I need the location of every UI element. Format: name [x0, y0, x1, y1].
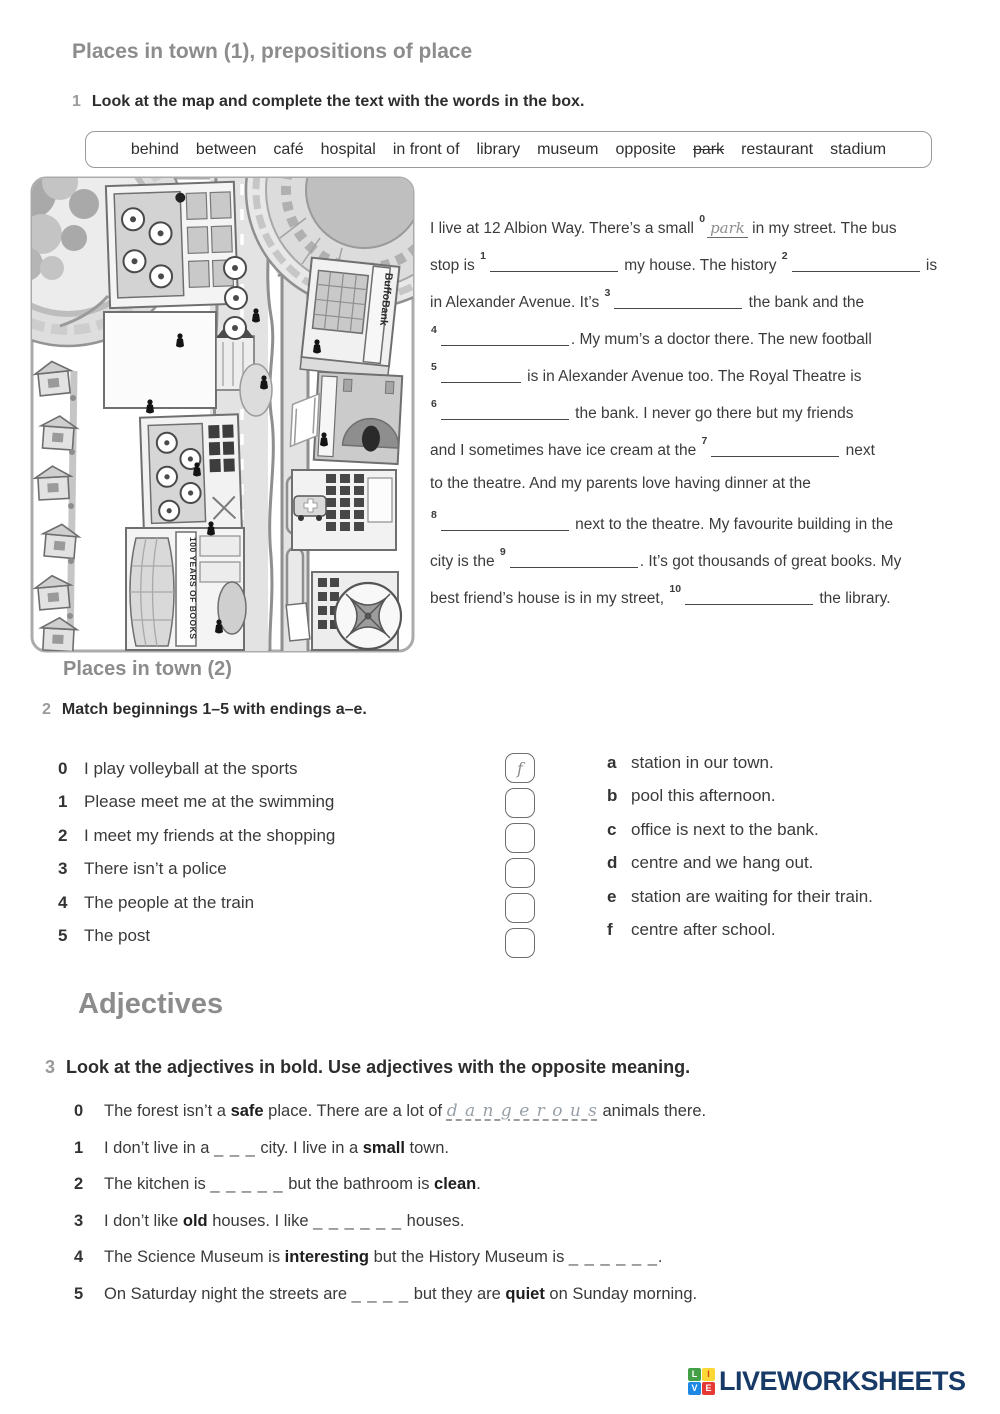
word-box-item: park	[693, 141, 724, 159]
exercise2-instruction: 2Match beginnings 1–5 with endings a–e.	[42, 701, 367, 719]
item-letter: c	[607, 820, 631, 840]
text-line: 4. My mum’s a doctor there. The new foot…	[430, 317, 982, 354]
logo-square: L	[688, 1368, 701, 1381]
text-line: city is the 9. It’s got thousands of gre…	[430, 539, 982, 576]
item-text: There isn’t a police	[84, 859, 227, 879]
answer-blank[interactable]	[711, 441, 839, 457]
answer-blank[interactable]	[441, 404, 569, 420]
word-box-item: library	[477, 141, 521, 159]
exercise-number: 1	[72, 93, 81, 110]
logo-icon: LIVE	[688, 1368, 715, 1395]
answer-blank[interactable]	[510, 552, 638, 568]
match-beginning: 5The post	[58, 920, 335, 954]
section-heading-places2: Places in town (2)	[63, 658, 232, 681]
match-beginning: 4The people at the train	[58, 886, 335, 920]
logo-square: I	[702, 1368, 715, 1381]
adjective-item: 0The forest isn’t a safe place. There ar…	[74, 1093, 974, 1130]
blank-number: 3	[605, 287, 611, 299]
adjective-item: 4The Science Museum is interesting but t…	[74, 1239, 974, 1276]
logo-wordmark: LIVEWORKSHEETS	[719, 1366, 966, 1397]
exercise-number: 2	[42, 701, 51, 718]
exercise1-instruction: 1Look at the map and complete the text w…	[72, 93, 584, 111]
adjective-item: 3I don’t like old houses. I like _ _ _ _…	[74, 1203, 974, 1240]
text-line: and I sometimes have ice cream at the 7 …	[430, 428, 982, 465]
item-number: 3	[58, 859, 84, 879]
library-building: 100 YEARS OF BOOKS	[126, 528, 246, 650]
text-line: stop is 1 my house. The history 2 is	[430, 243, 982, 280]
exercise3-instruction: 3Look at the adjectives in bold. Use adj…	[45, 1057, 690, 1078]
match-beginning: 2I meet my friends at the shopping	[58, 819, 335, 853]
item-text: centre after school.	[631, 920, 776, 940]
blank-number: 10	[669, 583, 681, 595]
word-box-item: between	[196, 141, 257, 159]
bold-adjective: clean	[434, 1175, 476, 1193]
word-box-item: restaurant	[741, 141, 813, 159]
item-number: 1	[74, 1130, 104, 1167]
logo-square: E	[702, 1382, 715, 1395]
item-text: office is next to the bank.	[631, 820, 819, 840]
item-text: On Saturday night the streets are _ _ _ …	[104, 1285, 697, 1303]
item-text: I play volleyball at the sports	[84, 759, 298, 779]
item-text: The Science Museum is interesting but th…	[104, 1248, 663, 1266]
match-ending: coffice is next to the bank.	[607, 813, 873, 847]
item-letter: e	[607, 887, 631, 907]
blank-number: 6	[431, 398, 437, 410]
match-ending: estation are waiting for their train.	[607, 880, 873, 914]
bank-building: BuffoBank	[300, 258, 399, 379]
adjective-item: 5On Saturday night the streets are _ _ _…	[74, 1276, 974, 1313]
answer-blank[interactable]	[490, 256, 618, 272]
blank-number: 9	[500, 546, 506, 558]
answer-blank[interactable]	[685, 589, 813, 605]
item-number: 5	[58, 926, 84, 946]
match-answer-box[interactable]	[505, 928, 535, 958]
word-box-item: museum	[537, 141, 598, 159]
town-map: 100 YEARS OF BOOKS BuffoBank	[30, 176, 415, 653]
logo-square: V	[688, 1382, 701, 1395]
bold-adjective: safe	[231, 1102, 264, 1120]
text-line: in Alexander Avenue. It’s 3 the bank and…	[430, 280, 982, 317]
match-beginning: 0I play volleyball at the sports	[58, 752, 335, 786]
section-heading-adjectives: Adjectives	[78, 988, 223, 1021]
item-letter: f	[607, 920, 631, 940]
blank-number: 7	[702, 435, 708, 447]
text-line: 6 the bank. I never go there but my frie…	[430, 391, 982, 428]
adjective-items-list: 0The forest isn’t a safe place. There ar…	[74, 1093, 974, 1312]
match-beginning: 1Please meet me at the swimming	[58, 786, 335, 820]
item-text: Please meet me at the swimming	[84, 792, 334, 812]
museum-building	[140, 414, 242, 531]
instruction-text: Look at the adjectives in bold. Use adje…	[66, 1057, 690, 1077]
item-text: I don’t live in a _ _ _ city. I live in …	[104, 1139, 449, 1157]
hospital-building	[292, 470, 396, 550]
blank-number: 2	[782, 250, 788, 262]
item-text: centre and we hang out.	[631, 853, 813, 873]
instruction-text: Look at the map and complete the text wi…	[92, 93, 585, 110]
match-answer-box[interactable]	[505, 788, 535, 818]
match-beginnings-list: 0I play volleyball at the sports1Please …	[58, 752, 335, 953]
item-number: 0	[58, 759, 84, 779]
blank-number: 0	[699, 213, 705, 225]
item-number: 4	[74, 1239, 104, 1276]
match-beginning: 3There isn’t a police	[58, 853, 335, 887]
item-text: The post	[84, 926, 150, 946]
text-line: I live at 12 Albion Way. There’s a small…	[430, 206, 982, 243]
gap-fill-text: I live at 12 Albion Way. There’s a small…	[430, 206, 982, 613]
answer-blank[interactable]: _ _ _ _	[352, 1285, 409, 1303]
item-text: station are waiting for their train.	[631, 887, 873, 907]
text-line: best friend’s house is in my street, 10 …	[430, 576, 982, 613]
match-ending: fcentre after school.	[607, 914, 873, 948]
match-answer-box[interactable]	[505, 858, 535, 888]
item-number: 5	[74, 1276, 104, 1313]
answer-blank[interactable]	[792, 256, 920, 272]
adjective-item: 1I don’t live in a _ _ _ city. I live in…	[74, 1130, 974, 1167]
word-box-item: in front of	[393, 141, 460, 159]
item-letter: d	[607, 853, 631, 873]
answer-blank[interactable]: _ _ _ _ _ _	[313, 1212, 402, 1230]
worksheet-page: Places in town (1), prepositions of plac…	[0, 0, 1000, 1414]
town-map-illustration: 100 YEARS OF BOOKS BuffoBank	[30, 176, 415, 653]
match-ending: dcentre and we hang out.	[607, 847, 873, 881]
match-answer-box[interactable]	[505, 823, 535, 853]
answer-blank[interactable]	[614, 293, 742, 309]
item-number: 0	[74, 1093, 104, 1130]
match-answer: f	[517, 759, 523, 778]
item-text: I don’t like old houses. I like _ _ _ _ …	[104, 1212, 464, 1230]
blank-number: 1	[480, 250, 486, 262]
match-ending: bpool this afternoon.	[607, 780, 873, 814]
item-letter: a	[607, 753, 631, 773]
answer-blank[interactable]	[441, 367, 521, 383]
bold-adjective: old	[183, 1212, 208, 1230]
answer-blank[interactable]: _ _ _	[214, 1139, 256, 1157]
item-text: station in our town.	[631, 753, 774, 773]
item-text: pool this afternoon.	[631, 786, 776, 806]
instruction-text: Match beginnings 1–5 with endings a–e.	[62, 701, 367, 718]
item-number: 1	[58, 792, 84, 812]
text-line: 5 is in Alexander Avenue too. The Royal …	[430, 354, 982, 391]
handwritten-answer: d a n g e r o u s	[447, 1101, 598, 1121]
match-answer-boxes: f	[505, 753, 535, 963]
word-box-item: opposite	[615, 141, 676, 159]
item-number: 2	[74, 1166, 104, 1203]
answer-blank[interactable]: _ _ _ _ _	[210, 1175, 283, 1193]
item-text: The kitchen is _ _ _ _ _ but the bathroo…	[104, 1175, 481, 1193]
text-line: to the theatre. And my parents love havi…	[430, 465, 982, 502]
item-number: 4	[58, 893, 84, 913]
museum-building	[106, 182, 238, 308]
liveworksheets-logo[interactable]: LIVE LIVEWORKSHEETS	[688, 1366, 966, 1397]
blank-number: 8	[431, 509, 437, 521]
answer-blank[interactable]: _ _ _ _ _ _	[569, 1248, 658, 1266]
adjective-item: 2The kitchen is _ _ _ _ _ but the bathro…	[74, 1166, 974, 1203]
blank-number: 4	[431, 324, 437, 336]
answer-blank[interactable]	[441, 515, 569, 531]
item-letter: b	[607, 786, 631, 806]
filled-answer[interactable]: park	[707, 219, 748, 238]
item-text: I meet my friends at the shopping	[84, 826, 335, 846]
exercise-number: 3	[45, 1057, 55, 1077]
text-line: 8 next to the theatre. My favourite buil…	[430, 502, 982, 539]
word-box-item: hospital	[321, 141, 376, 159]
match-answer-box[interactable]: f	[505, 753, 535, 783]
item-number: 2	[58, 826, 84, 846]
match-endings-list: astation in our town.bpool this afternoo…	[607, 746, 873, 947]
item-text: The people at the train	[84, 893, 254, 913]
bold-adjective: interesting	[285, 1248, 369, 1266]
item-number: 3	[74, 1203, 104, 1240]
blank-number: 5	[431, 361, 437, 373]
bold-adjective: small	[363, 1139, 405, 1157]
library-banner-label: 100 YEARS OF BOOKS	[188, 537, 198, 639]
word-box-item: stadium	[830, 141, 886, 159]
answer-blank[interactable]	[441, 330, 569, 346]
bold-adjective: quiet	[505, 1285, 544, 1303]
word-box: behindbetweencaféhospitalin front oflibr…	[85, 131, 932, 168]
word-box-item: behind	[131, 141, 179, 159]
match-ending: astation in our town.	[607, 746, 873, 780]
item-text: The forest isn’t a safe place. There are…	[104, 1102, 706, 1120]
page-title: Places in town (1), prepositions of plac…	[72, 40, 472, 64]
match-answer-box[interactable]	[505, 893, 535, 923]
word-box-item: café	[273, 141, 303, 159]
